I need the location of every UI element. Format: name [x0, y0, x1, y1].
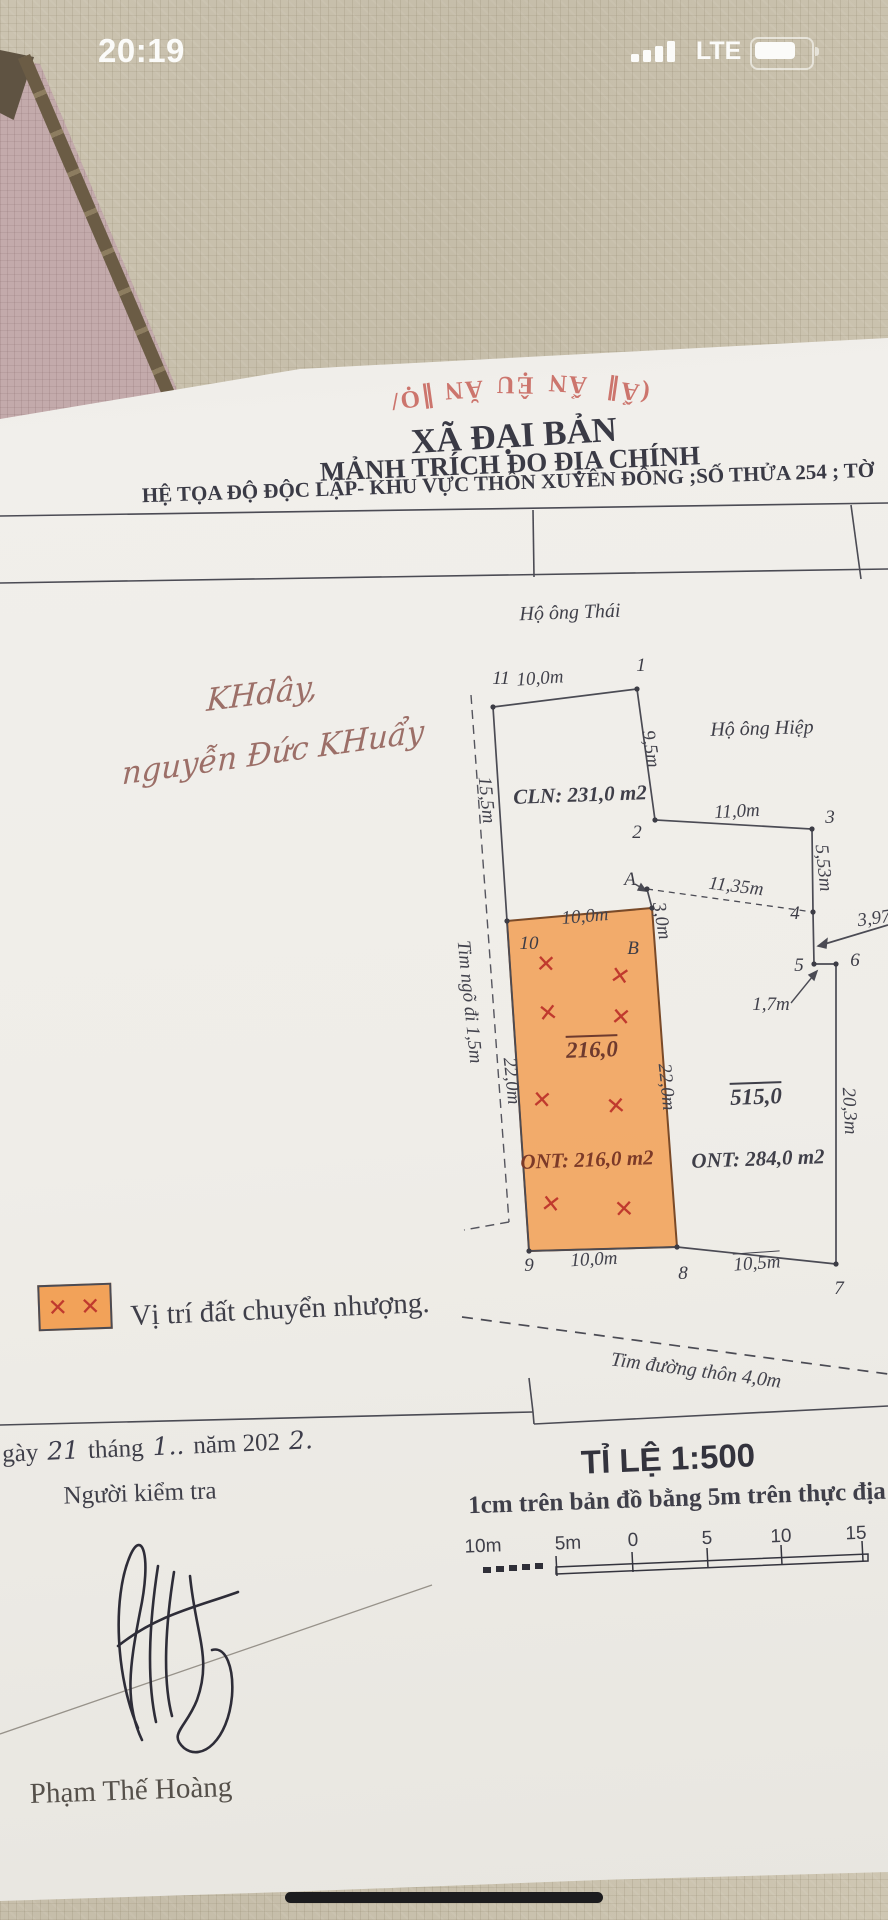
network-type-label: LTE: [696, 37, 741, 66]
date-month-handwritten: 1..: [152, 1431, 185, 1461]
home-indicator[interactable]: [285, 1892, 603, 1903]
neighbor-top-label: Hộ ông Thái: [519, 600, 621, 627]
point-A: A: [624, 869, 636, 891]
transfer-mark: ✕: [536, 998, 559, 1028]
stamp-fragment: ỆU: [494, 370, 533, 399]
point-4: 4: [790, 903, 800, 925]
scale-tick-5m: 5m: [554, 1533, 581, 1556]
stamp-fragment: ĂN: [442, 374, 484, 405]
plot-area-515: 515,0: [730, 1083, 783, 1111]
stamp-fragment: (Ẩ∥: [603, 373, 652, 409]
point-11: 11: [492, 668, 510, 690]
scale-tick-15: 15: [845, 1523, 867, 1546]
dim-10-0-bottom: 10,0m: [570, 1248, 618, 1272]
scale-tick-10: 10: [770, 1526, 792, 1549]
dim-10-5: 10,5m: [733, 1251, 781, 1276]
transfer-mark: ✕: [539, 1189, 562, 1219]
plot-ont-284: ONT: 284,0 m2: [691, 1144, 825, 1174]
scale-title: TỈ LỆ 1:500: [580, 1436, 756, 1482]
paper-crease: [0, 1585, 432, 1734]
point-1: 1: [636, 655, 646, 677]
inspector-label: Người kiểm tra: [63, 1477, 217, 1510]
plot-216-fill: [507, 908, 677, 1251]
battery-icon: [750, 37, 814, 70]
transfer-mark: ✕: [605, 1091, 627, 1121]
point-8: 8: [678, 1263, 688, 1285]
transfer-mark: ✕: [610, 1002, 632, 1032]
diagram-linework: [0, 0, 888, 1920]
dim-10-0-orange-top: 10,0m: [561, 904, 610, 930]
scale-bar-dots: [483, 1563, 543, 1573]
transfer-mark: ✕: [531, 1085, 553, 1114]
transfer-mark: ✕: [613, 1194, 635, 1223]
cln-area-label: CLN: 231,0 m2: [513, 780, 647, 810]
battery-nub: [815, 47, 819, 56]
status-time: 20:19: [98, 32, 185, 70]
dim-10-0-top: 10,0m: [516, 666, 564, 691]
battery-fill: [755, 42, 795, 59]
legend-symbol-box: ✕ ✕: [37, 1283, 113, 1332]
point-3: 3: [825, 807, 835, 829]
signal-strength-icon: [631, 40, 687, 62]
date-prefix: gày: [2, 1439, 39, 1469]
dim-11-0: 11,0m: [714, 800, 761, 824]
point-7: 7: [834, 1278, 844, 1300]
stamp-fragment: ẨN: [546, 368, 588, 399]
date-day-handwritten: 21: [47, 1435, 80, 1465]
date-month-label: tháng: [87, 1435, 144, 1465]
dim-20-3: 20,3m: [837, 1087, 861, 1135]
dim-3-97: 3,97: [856, 906, 888, 932]
signature: [118, 1545, 238, 1752]
signer-name: Phạm Thế Hoàng: [29, 1771, 232, 1811]
transfer-mark: ✕: [535, 950, 556, 979]
dim-1-7: 1,7m: [752, 994, 789, 1016]
plot-ont-216: ONT: 216,0 m2: [520, 1145, 654, 1175]
scale-tick-0: 0: [627, 1530, 638, 1552]
point-6: 6: [850, 950, 860, 972]
date-year-handwritten: 2.: [288, 1425, 313, 1455]
point-5: 5: [794, 955, 804, 977]
scale-tick-10m: 10m: [464, 1535, 502, 1558]
scale-tick-5: 5: [701, 1528, 712, 1550]
date-year-label: năm 202: [193, 1429, 281, 1461]
point-B: B: [627, 938, 639, 960]
point-9: 9: [524, 1255, 534, 1277]
phone-screen: ∥Ọ/ ĂN ỆU ẨN (Ẩ∥ XÃ ĐẠI BẢN MẢNH TRÍCH Đ…: [0, 0, 888, 1920]
neighbor-right-label: Hộ ông Hiệp: [710, 716, 814, 742]
sheet-neatlines: [0, 503, 888, 1425]
plot-area-216: 216,0: [566, 1036, 619, 1064]
point-2: 2: [632, 822, 642, 844]
stamp-fragment: ∥Ọ/: [388, 381, 437, 417]
